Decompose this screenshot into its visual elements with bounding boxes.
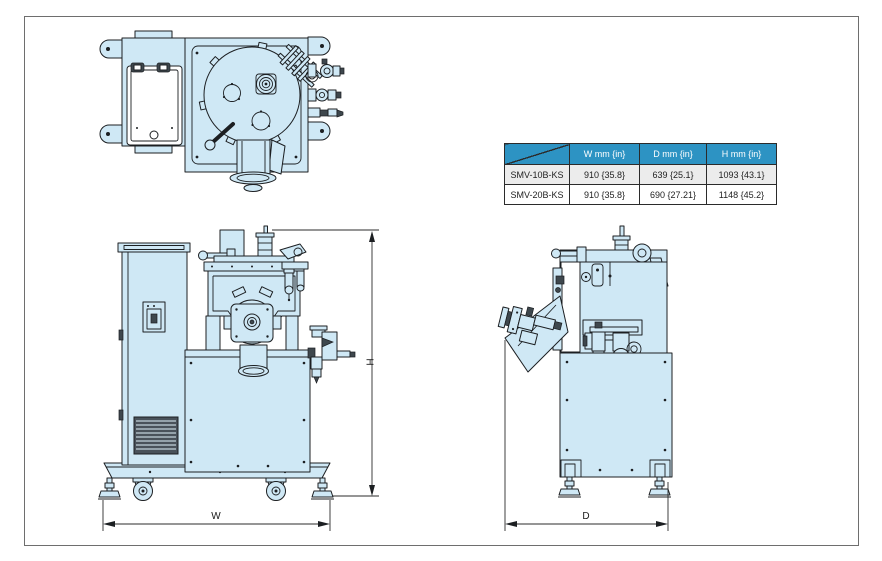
top-discharge-port	[230, 140, 285, 192]
top-right-fittings	[308, 59, 344, 117]
leveling-foot-right	[311, 478, 334, 499]
catalog-page: H W	[0, 0, 882, 561]
top-view-machine	[100, 31, 344, 192]
width-label: W	[211, 511, 221, 522]
front-view-drawing: H W	[95, 222, 395, 537]
depth-value-cell: 690 {27.21}	[640, 185, 707, 205]
table-header-height: H mm {in}	[707, 144, 777, 165]
discharge-cylinder	[239, 345, 269, 377]
vent-grille	[134, 417, 178, 454]
side-upper-box	[553, 262, 667, 353]
depth-value-cell: 639 {25.1}	[640, 165, 707, 185]
model-name-cell: SMV-10B-KS	[505, 165, 570, 185]
side-lower-box	[560, 353, 672, 477]
table-row: SMV-10B-KS 910 {35.8} 639 {25.1} 1093 {4…	[505, 165, 777, 185]
air-cylinder	[256, 226, 274, 258]
dimension-spec-table: W mm {in} D mm {in} H mm {in} SMV-10B-KS…	[504, 143, 777, 205]
width-value-cell: 910 {35.8}	[570, 165, 640, 185]
side-chute	[496, 296, 568, 372]
caster-left	[133, 478, 153, 501]
circuit-breaker	[143, 302, 165, 332]
side-foot-left	[558, 477, 581, 497]
top-left-panel	[122, 31, 185, 153]
control-cabinet	[118, 243, 190, 465]
side-view-drawing: D	[490, 222, 680, 537]
table-corner-cell	[505, 144, 570, 165]
leveling-foot-left	[98, 478, 121, 499]
table-header-width: W mm {in}	[570, 144, 640, 165]
model-name-cell: SMV-20B-KS	[505, 185, 570, 205]
depth-label: D	[582, 511, 589, 522]
height-value-cell: 1148 {45.2}	[707, 185, 777, 205]
front-pneumatic-unit	[308, 326, 355, 383]
table-row: SMV-20B-KS 910 {35.8} 690 {27.21} 1148 {…	[505, 185, 777, 205]
height-label: H	[364, 358, 375, 365]
height-value-cell: 1093 {43.1}	[707, 165, 777, 185]
dimension-width: W	[103, 500, 330, 531]
table-header-depth: D mm {in}	[640, 144, 707, 165]
width-value-cell: 910 {35.8}	[570, 185, 640, 205]
caster-right	[266, 478, 286, 501]
top-view-drawing	[95, 28, 355, 198]
